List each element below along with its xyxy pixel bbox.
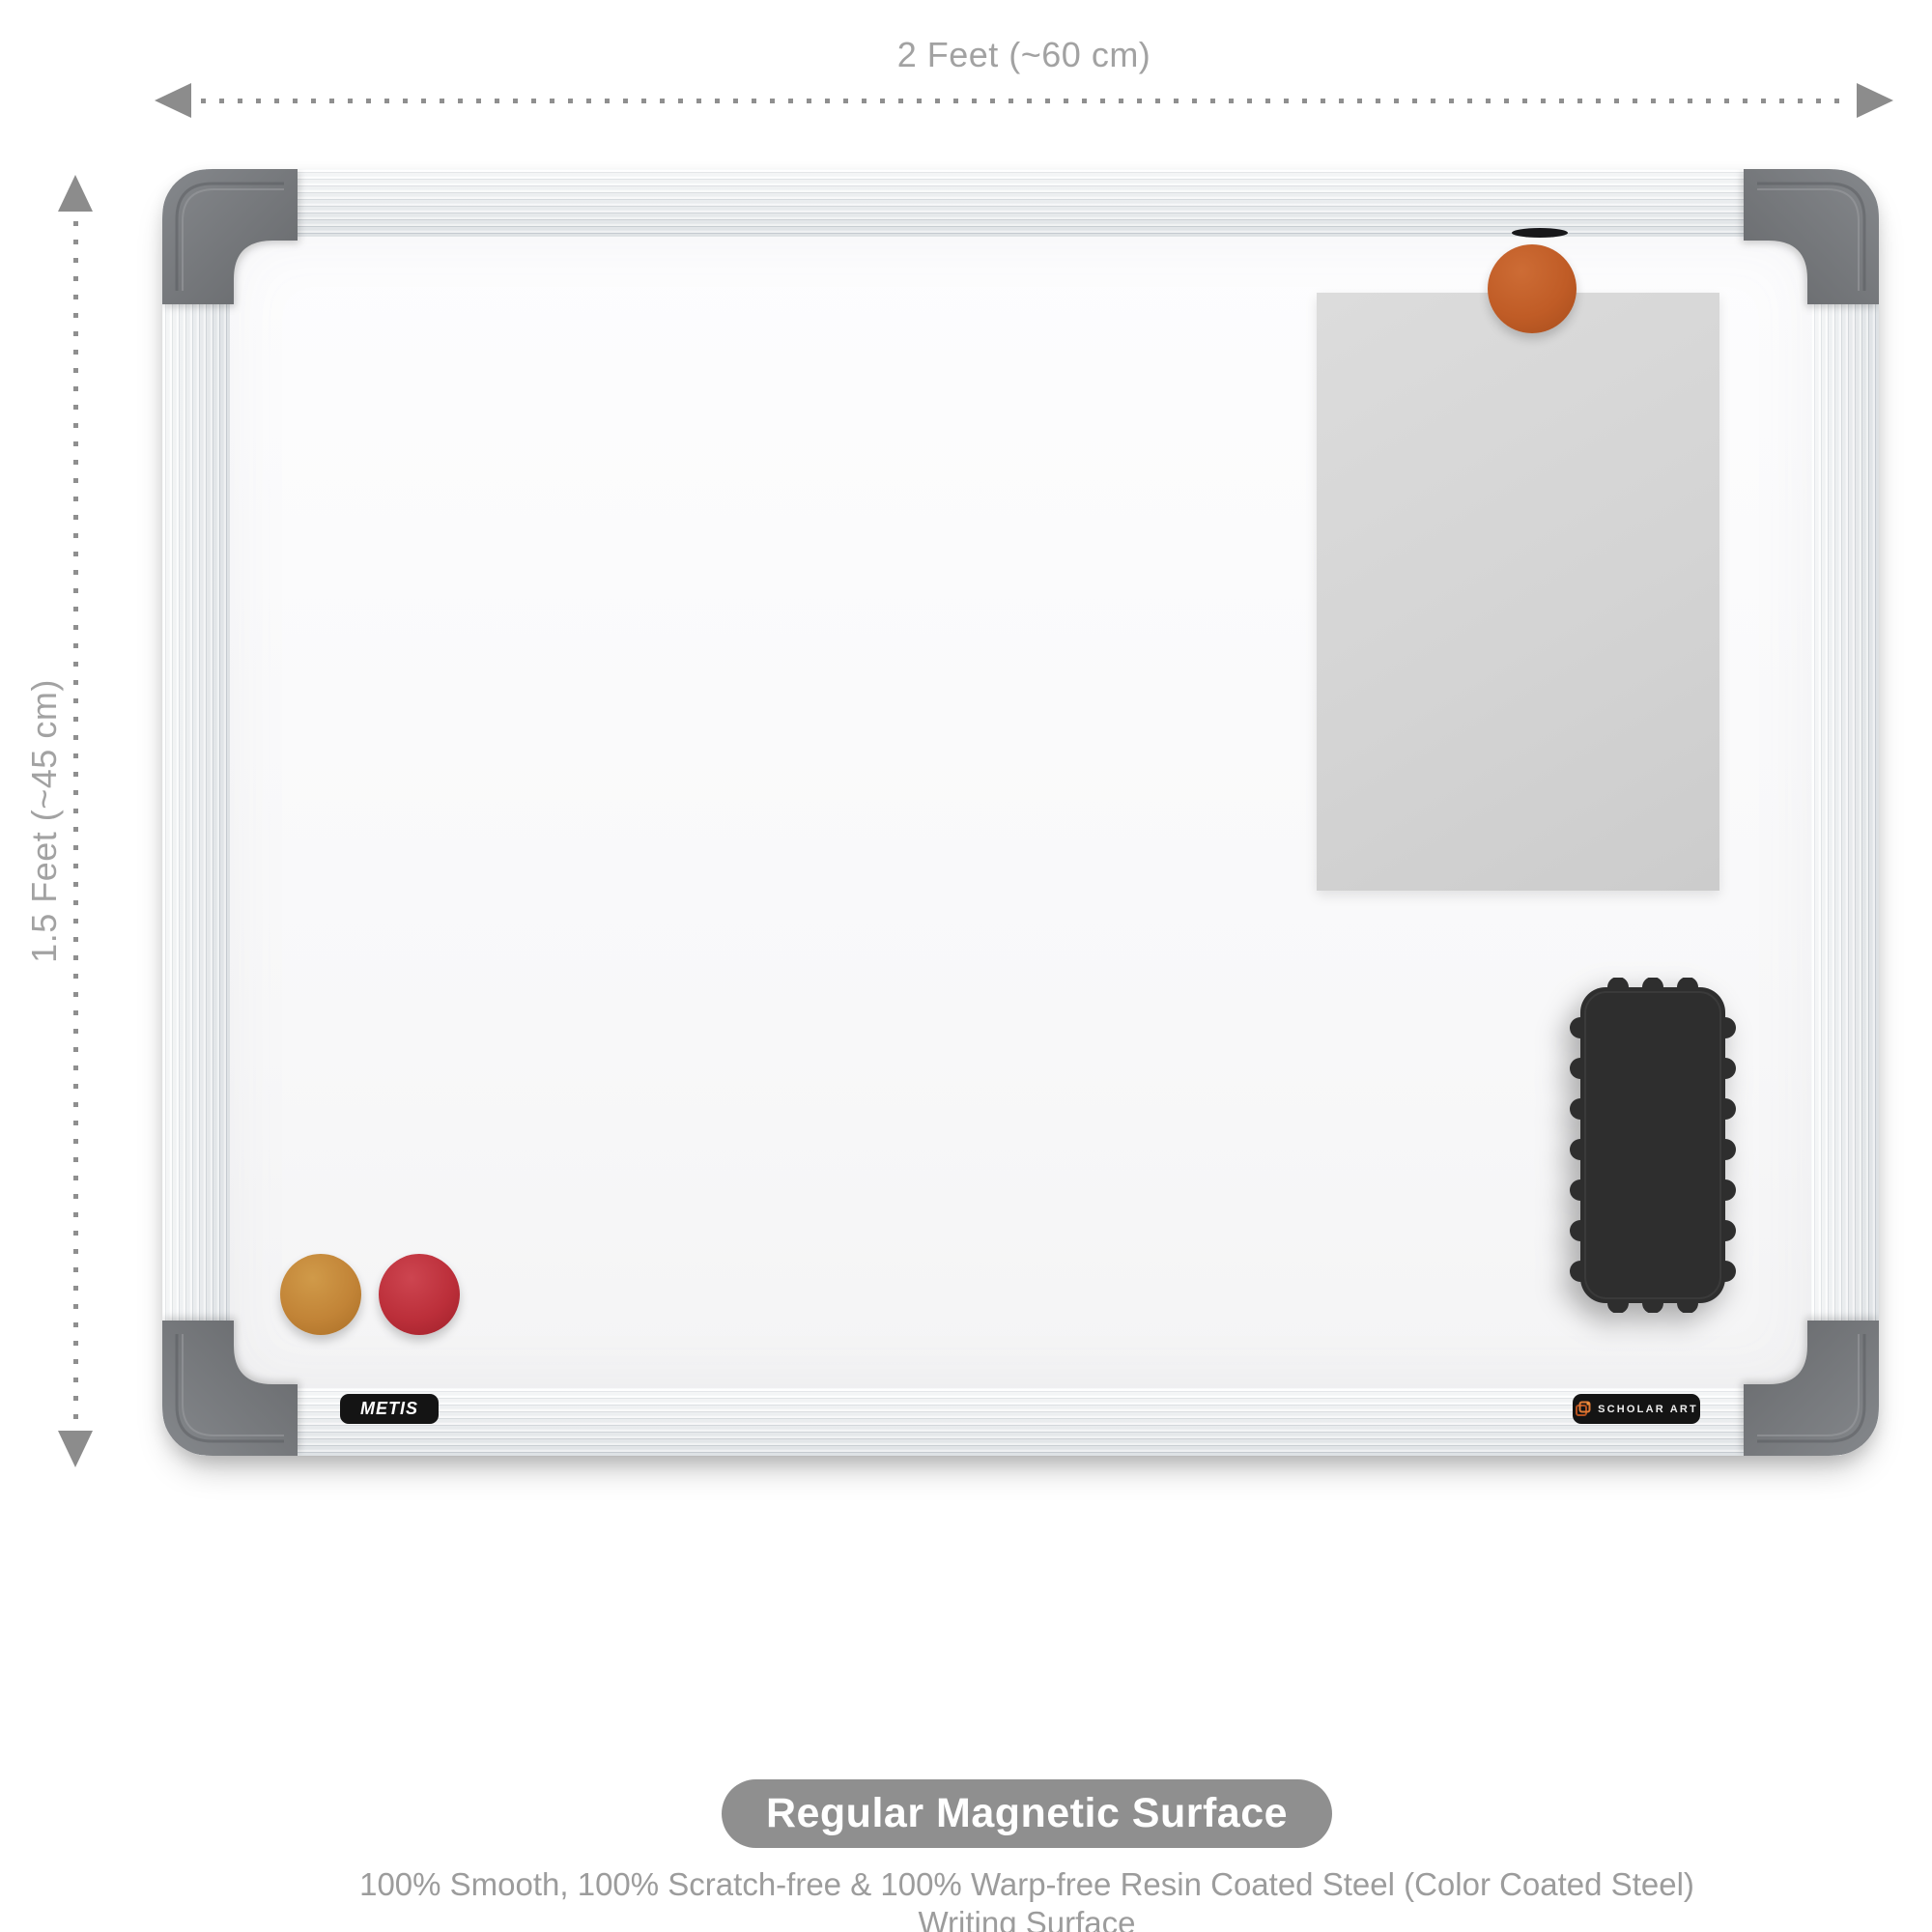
frame-rail-left <box>162 169 230 1456</box>
dotted-line-vertical <box>73 221 78 1421</box>
paper-sheet <box>1317 293 1719 891</box>
metis-brand-text: METIS <box>360 1399 418 1419</box>
frame-rail-right <box>1811 169 1879 1456</box>
surface-type-badge: Regular Magnetic Surface <box>722 1779 1332 1848</box>
corner-cap-top-right <box>1744 169 1879 304</box>
surface-description-line1: 100% Smooth, 100% Scratch-free & 100% Wa… <box>122 1865 1932 1904</box>
surface-description: 100% Smooth, 100% Scratch-free & 100% Wa… <box>122 1865 1932 1932</box>
marker-hook <box>1512 228 1568 238</box>
corner-cap-bottom-left <box>162 1321 298 1456</box>
width-dimension: 2 Feet (~60 cm) <box>155 83 1893 120</box>
writing-surface <box>230 235 1811 1388</box>
arrow-right-icon <box>1857 83 1893 118</box>
scholar-art-text: SCHOLAR ART <box>1598 1404 1698 1415</box>
corner-cap-bottom-right <box>1744 1321 1879 1456</box>
black-eraser <box>1570 978 1736 1313</box>
width-dimension-label: 2 Feet (~60 cm) <box>155 35 1893 75</box>
whiteboard-frame: METIS SCHOLAR ART <box>162 169 1879 1456</box>
scholar-art-label: SCHOLAR ART <box>1573 1394 1700 1424</box>
height-dimension-label: 1.5 Feet (~45 cm) <box>24 679 65 963</box>
surface-description-line2: Writing Surface <box>122 1904 1932 1932</box>
orange-magnet <box>1488 244 1577 333</box>
corner-cap-top-left <box>162 169 298 304</box>
product-image: 2 Feet (~60 cm) 1.5 Feet (~45 cm) <box>0 0 1932 1932</box>
red-magnet <box>379 1254 460 1335</box>
dotted-line-horizontal <box>201 99 1847 103</box>
arrow-up-icon <box>58 175 93 212</box>
whiteboard: METIS SCHOLAR ART <box>162 169 1879 1456</box>
metis-brand-label: METIS <box>340 1394 439 1424</box>
footer: Regular Magnetic Surface 100% Smooth, 10… <box>122 1779 1932 1932</box>
height-dimension: 1.5 Feet (~45 cm) <box>58 175 93 1467</box>
scholar-art-logo-icon <box>1575 1401 1591 1417</box>
frame-rail-top <box>162 169 1879 237</box>
arrow-left-icon <box>155 83 191 118</box>
arrow-down-icon <box>58 1431 93 1467</box>
